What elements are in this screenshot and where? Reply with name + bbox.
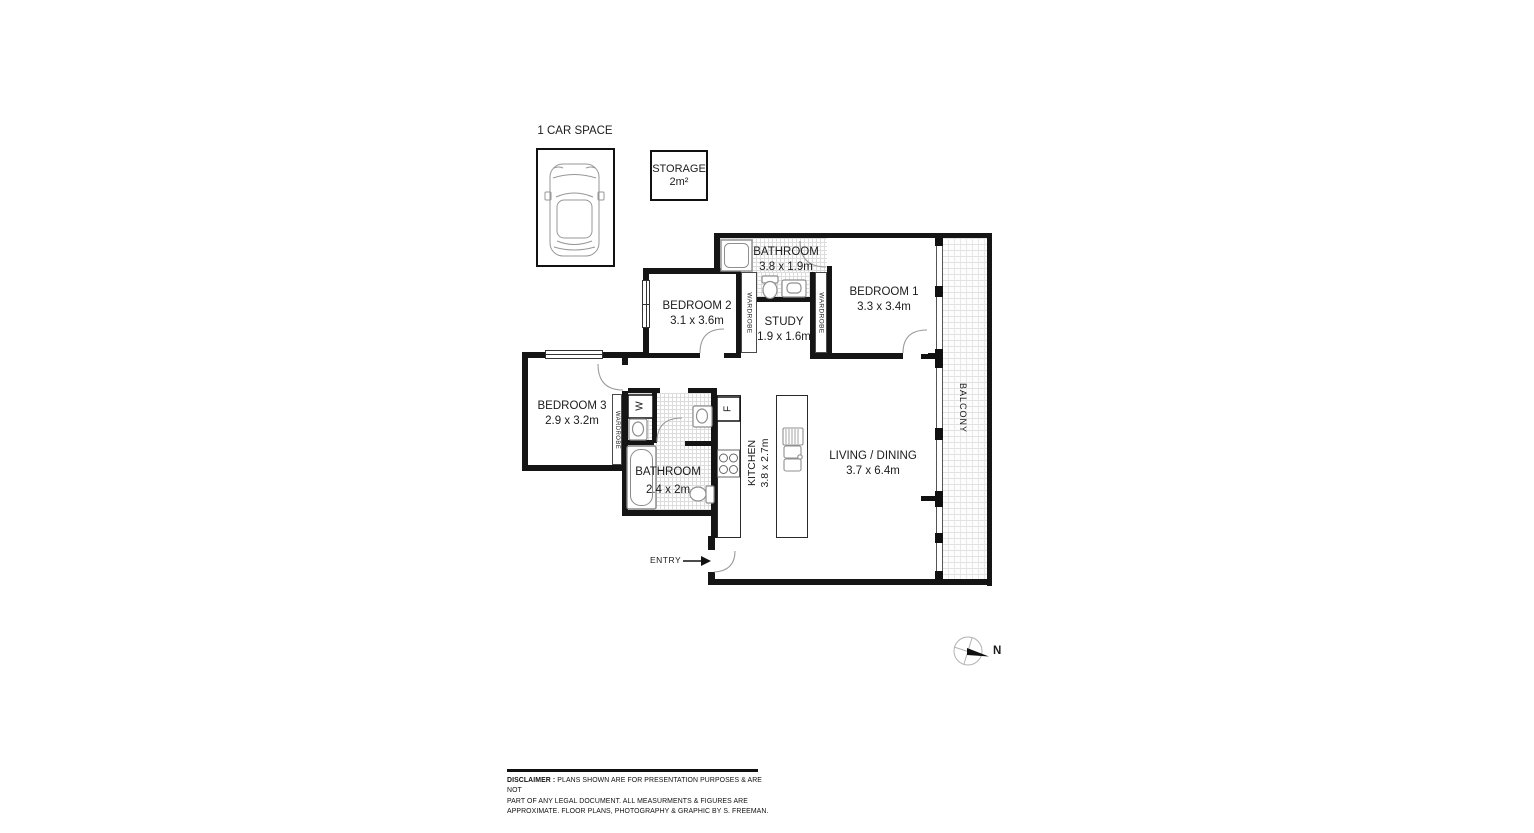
wardrobe-label: WARDROBE (746, 292, 753, 333)
room-name: STUDY (757, 315, 811, 330)
fixtures-overlay (0, 0, 1534, 833)
room-dims: 3.1 x 3.6m (662, 314, 731, 329)
room-label-bedroom3: BEDROOM 3 2.9 x 3.2m (537, 399, 606, 428)
floor-plan: 1 CAR SPACE STORAGE 2m² (0, 0, 1534, 833)
disclaimer-line: PART OF ANY LEGAL DOCUMENT. ALL MEASURME… (507, 797, 775, 807)
disclaimer-line: APPROXIMATE. FLOOR PLANS, PHOTOGRAPHY & … (507, 807, 775, 817)
room-dims: 3.3 x 3.4m (849, 300, 918, 315)
fridge-label: F (723, 406, 734, 412)
compass (954, 637, 989, 665)
compass-needle (967, 648, 989, 657)
vanity-basin (782, 280, 806, 297)
room-dims: 3.8 x 2.7m (759, 438, 772, 487)
room-dims: 3.8 x 1.9m (753, 260, 819, 275)
room-name: BATHROOM (753, 245, 819, 260)
vanity-basin (693, 406, 712, 427)
door-arc (598, 364, 623, 390)
room-dims: 1.9 x 1.6m (757, 330, 811, 345)
disclaimer: DISCLAIMER : PLANS SHOWN ARE FOR PRESENT… (507, 776, 775, 817)
cooktop (718, 450, 740, 477)
disclaimer-line: DISCLAIMER : PLANS SHOWN ARE FOR PRESENT… (507, 776, 775, 797)
room-label-balcony: BALCONY (958, 383, 968, 433)
room-label-study: STUDY 1.9 x 1.6m (757, 315, 811, 344)
room-label-kitchen: KITCHEN 3.8 x 2.7m (746, 438, 772, 487)
shower (721, 240, 752, 271)
room-name: KITCHEN (746, 438, 759, 487)
wardrobe-label: WARDROBE (818, 292, 825, 333)
north-label: N (993, 645, 1001, 657)
room-label-bathroom2: BATHROOM 2.4 x 2m (635, 464, 701, 499)
room-name: BEDROOM 3 (537, 399, 606, 414)
door-arc (903, 330, 927, 353)
washer-label: W (635, 401, 646, 410)
door-arc (714, 551, 735, 572)
room-dims: 2.9 x 3.2m (537, 414, 606, 429)
room-dims: 3.7 x 6.4m (829, 464, 917, 479)
door-arc (657, 418, 682, 442)
disclaimer-heading: DISCLAIMER : (507, 777, 555, 784)
kitchen-sink (783, 428, 803, 471)
entry-label: ENTRY (650, 555, 681, 565)
room-name: LIVING / DINING (829, 449, 917, 464)
room-name: BATHROOM (635, 464, 701, 482)
room-label-living: LIVING / DINING 3.7 x 6.4m (829, 449, 917, 478)
door-arc (700, 329, 724, 353)
entry-arrow (683, 556, 711, 566)
room-name: BEDROOM 2 (662, 299, 731, 314)
wardrobe-label: WARDROBE (614, 411, 620, 449)
room-name: BEDROOM 1 (849, 285, 918, 300)
car-icon (545, 164, 604, 256)
disclaimer-divider (507, 769, 758, 772)
vanity-basin (629, 419, 647, 440)
room-label-bedroom1: BEDROOM 1 3.3 x 3.4m (849, 285, 918, 314)
room-dims: 2.4 x 2m (635, 482, 701, 500)
room-label-bedroom2: BEDROOM 2 3.1 x 3.6m (662, 299, 731, 328)
toilet (762, 276, 778, 299)
room-label-bathroom-main: BATHROOM 3.8 x 1.9m (753, 245, 819, 274)
